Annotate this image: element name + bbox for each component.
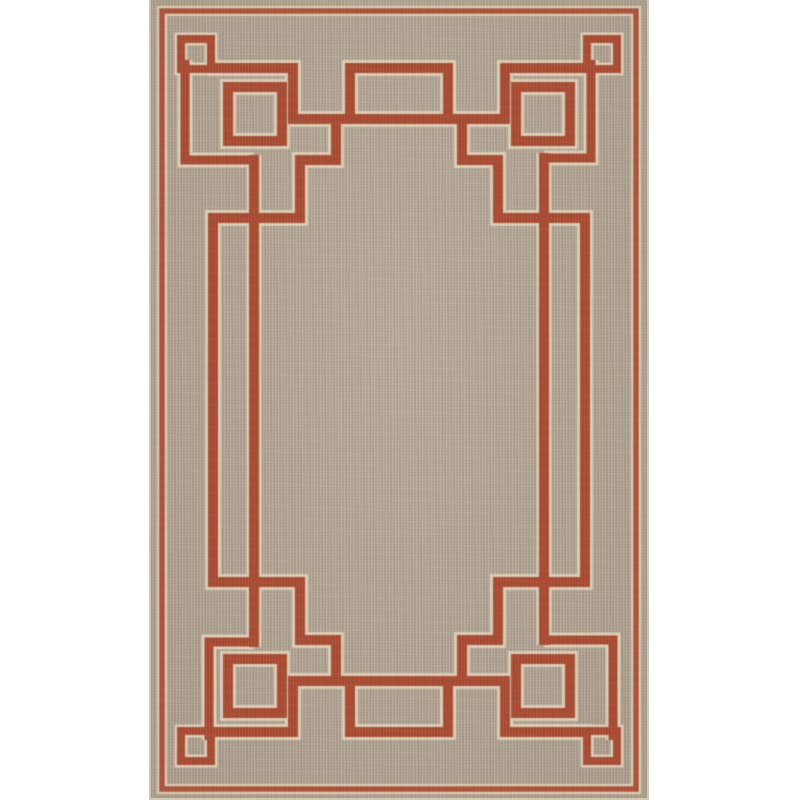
left-stepped-chain [213, 115, 336, 685]
rug-pattern-svg [149, 0, 649, 800]
right-stepped-chain [462, 115, 585, 685]
rug-image [149, 0, 649, 800]
nested-square-top-left [228, 87, 282, 141]
product-photo-canvas [0, 0, 800, 800]
pattern-outline-layer [162, 11, 636, 789]
nested-square-bottom-left [228, 659, 282, 713]
nested-square-top-right [516, 87, 570, 141]
nested-square-bottom-right [516, 659, 570, 713]
